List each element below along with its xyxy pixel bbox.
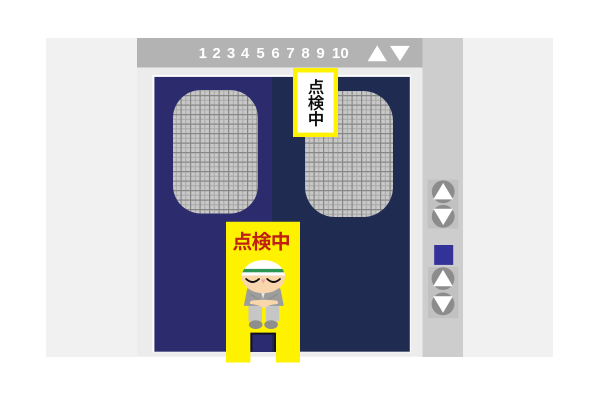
- svg-text:1: 1: [199, 45, 207, 62]
- svg-text:8: 8: [301, 45, 309, 62]
- svg-text:4: 4: [241, 45, 250, 62]
- svg-text:5: 5: [256, 45, 264, 62]
- svg-text:9: 9: [316, 45, 324, 62]
- svg-text:3: 3: [227, 45, 235, 62]
- svg-text:2: 2: [212, 45, 220, 62]
- svg-text:1: 1: [332, 45, 340, 62]
- svg-text:7: 7: [286, 45, 294, 62]
- svg-text:0: 0: [340, 45, 348, 62]
- svg-text:6: 6: [271, 45, 279, 62]
